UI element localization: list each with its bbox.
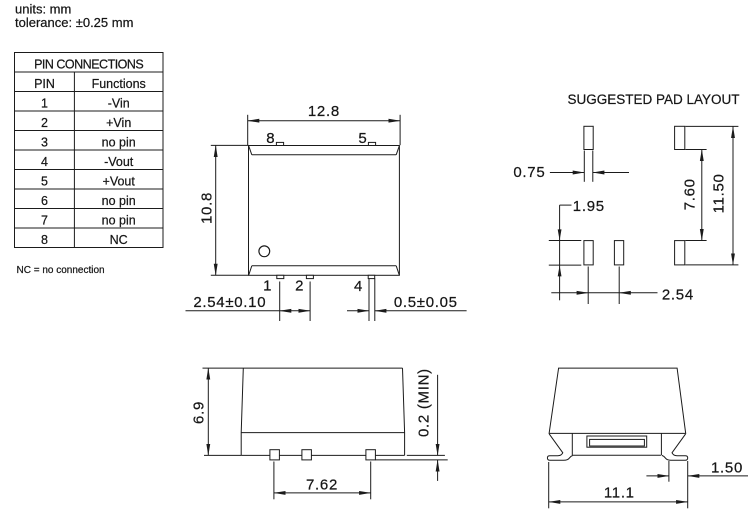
svg-text:4: 4 — [354, 278, 363, 295]
svg-text:no pin: no pin — [102, 194, 136, 208]
svg-text:no pin: no pin — [102, 136, 136, 150]
svg-text:SUGGESTED PAD LAYOUT: SUGGESTED PAD LAYOUT — [567, 92, 739, 107]
svg-text:0.2 (MIN): 0.2 (MIN) — [415, 368, 432, 437]
svg-text:2.54±0.10: 2.54±0.10 — [193, 294, 266, 311]
svg-text:7: 7 — [41, 214, 48, 228]
svg-text:-Vin: -Vin — [108, 97, 130, 111]
svg-text:6.9: 6.9 — [191, 401, 208, 424]
svg-text:2.54: 2.54 — [662, 287, 694, 304]
svg-text:4: 4 — [41, 155, 48, 169]
svg-text:Functions: Functions — [92, 77, 146, 91]
svg-text:1: 1 — [263, 278, 272, 295]
svg-text:8: 8 — [41, 233, 48, 247]
svg-text:-Vout: -Vout — [104, 155, 134, 169]
svg-text:5: 5 — [41, 175, 48, 189]
svg-text:no pin: no pin — [102, 214, 136, 228]
svg-text:1.50: 1.50 — [711, 459, 743, 476]
svg-text:NC = no connection: NC = no connection — [17, 265, 105, 276]
svg-text:1.95: 1.95 — [573, 198, 605, 215]
svg-text:5: 5 — [358, 130, 367, 147]
svg-text:11.1: 11.1 — [604, 484, 635, 501]
svg-text:3: 3 — [41, 136, 48, 150]
svg-text:11.50: 11.50 — [711, 173, 728, 213]
svg-text:tolerance: ±0.25 mm: tolerance: ±0.25 mm — [15, 15, 133, 30]
svg-text:+Vin: +Vin — [106, 116, 131, 130]
svg-text:+Vout: +Vout — [103, 175, 136, 189]
svg-text:6: 6 — [41, 194, 48, 208]
svg-text:8: 8 — [266, 130, 275, 147]
svg-text:2: 2 — [41, 116, 48, 130]
svg-text:PIN CONNECTIONS: PIN CONNECTIONS — [34, 58, 143, 72]
svg-text:7.60: 7.60 — [682, 178, 699, 210]
svg-text:2: 2 — [295, 278, 304, 295]
svg-text:0.75: 0.75 — [513, 164, 545, 181]
svg-text:10.8: 10.8 — [199, 192, 216, 224]
svg-text:7.62: 7.62 — [306, 477, 338, 494]
svg-text:NC: NC — [110, 233, 128, 247]
svg-text:0.5±0.05: 0.5±0.05 — [394, 294, 458, 311]
svg-text:1: 1 — [41, 97, 48, 111]
svg-text:PIN: PIN — [34, 77, 55, 91]
svg-text:12.8: 12.8 — [308, 103, 340, 120]
